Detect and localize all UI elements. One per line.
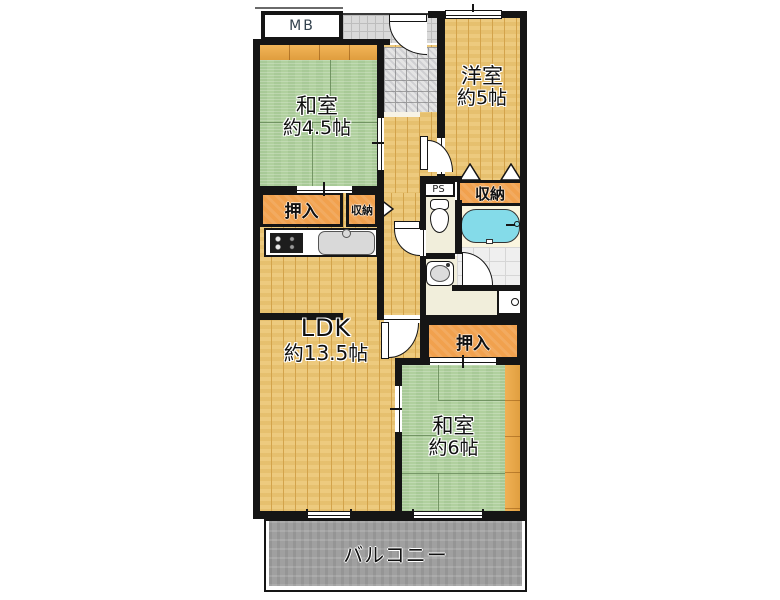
shuunou-hall-label: 収納 <box>351 202 373 218</box>
kitchen-stove-icon <box>270 233 303 253</box>
window-tick <box>306 509 308 521</box>
ldk-name: LDK <box>301 315 352 343</box>
mb-top-line <box>255 7 343 9</box>
window-tick <box>472 4 474 12</box>
bathtub-icon <box>461 209 520 243</box>
wall-mid-right <box>420 315 527 323</box>
wall-bath-left <box>455 200 462 254</box>
wall-ps-top <box>420 176 462 182</box>
oshiire-bottom-box: 押入 <box>426 322 520 360</box>
washroom-door-gap <box>420 230 426 256</box>
youshitsu-size: 約5帖 <box>457 88 507 110</box>
washing-machine-drain-icon <box>511 298 519 306</box>
tatami-line <box>438 473 439 513</box>
ldk-door-gap <box>384 315 420 323</box>
shuunou-bath-box: 収納 <box>457 180 523 206</box>
ldk-balcony-window <box>307 511 352 519</box>
window-tick <box>412 509 414 521</box>
window-tick <box>350 509 352 521</box>
fusuma-tick <box>323 182 325 196</box>
washitsu6-name: 和室 <box>433 414 475 438</box>
washroom-door-leaf <box>394 221 420 229</box>
wall-hall-right <box>420 176 426 362</box>
balcony-deck: バルコニー <box>269 521 522 586</box>
fusuma-tick <box>462 355 464 368</box>
floorplan-canvas: MB PS 収納 押入 収納 押入 バルコニー 和室 約4.5帖 <box>0 0 780 600</box>
meter-box-label: MB <box>289 18 315 34</box>
tatami-line <box>402 473 505 474</box>
ldk-size: 約13.5帖 <box>284 342 369 365</box>
balcony-label: バルコニー <box>343 539 448 568</box>
oshiire-bottom-label: 押入 <box>456 329 490 354</box>
wall-bath-bottom <box>452 285 527 291</box>
pipe-space-box: PS <box>422 182 455 197</box>
washitsu45-wood-strip <box>260 45 377 60</box>
meter-box: MB <box>261 11 343 41</box>
ldk-label: LDK 約13.5帖 <box>266 308 386 372</box>
wall-bottom <box>253 511 527 519</box>
genkan-step <box>384 112 420 117</box>
balcony-area: バルコニー <box>264 519 527 592</box>
entry-door-leaf <box>389 14 427 22</box>
pipe-space-label: PS <box>432 184 444 195</box>
wall-washitsu6-left <box>395 358 402 513</box>
sliding-door-tick <box>390 408 402 410</box>
washitsu45-name: 和室 <box>296 94 338 118</box>
washbasin-bowl-icon <box>430 265 450 282</box>
bathtub-drain-icon <box>486 239 493 244</box>
washitsu6-balcony-window <box>413 511 484 519</box>
washitsu45-size: 約4.5帖 <box>283 118 351 140</box>
wall-hall-left <box>377 45 384 320</box>
youshitsu-label: 洋室 約5帖 <box>444 58 520 116</box>
shuunou-hall-box: 収納 <box>346 192 378 227</box>
wall-top-left <box>253 39 390 45</box>
window-tick <box>482 509 484 521</box>
washitsu6-size: 約6帖 <box>428 438 478 460</box>
youshitsu-name: 洋室 <box>461 64 503 88</box>
wall-right <box>520 11 527 518</box>
washroom-floor-right <box>462 291 497 315</box>
genkan-tile <box>384 47 437 112</box>
washitsu6-wood-strip <box>505 365 520 513</box>
oshiire-top-box: 押入 <box>260 192 343 227</box>
youshitsu-door-leaf <box>420 136 428 170</box>
washitsu45-label: 和室 約4.5帖 <box>257 86 377 148</box>
shuunou-bath-label: 収納 <box>475 183 505 204</box>
washitsu45-sliding-door <box>378 118 384 170</box>
kitchen-faucet-icon <box>342 229 351 238</box>
tatami-line <box>438 400 505 401</box>
bifold-door-triangle-icon <box>500 163 522 181</box>
tatami-line <box>438 365 439 400</box>
washbasin-faucet-icon <box>446 263 450 267</box>
bifold-door-triangle-icon <box>459 163 481 181</box>
oshiire-top-label: 押入 <box>285 197 319 222</box>
washitsu6-label: 和室 約6帖 <box>402 408 505 466</box>
